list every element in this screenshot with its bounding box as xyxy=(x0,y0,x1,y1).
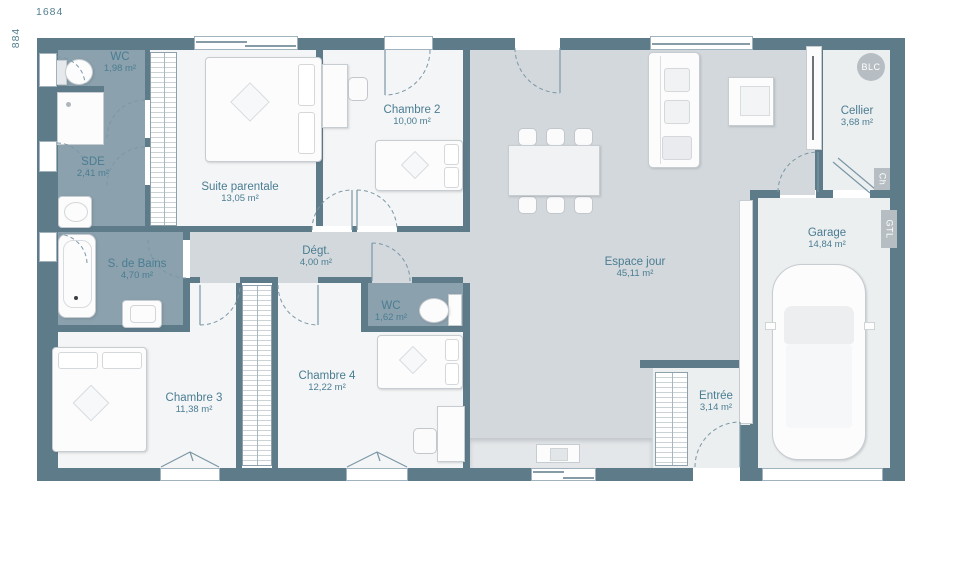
dining-chair xyxy=(518,128,537,146)
chair-chambre2 xyxy=(348,77,368,101)
wall-couloir-haut-b xyxy=(352,226,357,232)
toilet-bowl-wc1 xyxy=(65,59,93,85)
wall-wc2-bottom xyxy=(361,326,470,332)
washbasin-sde-bowl xyxy=(64,202,88,222)
window-salle-de-bains xyxy=(39,232,57,262)
pillow xyxy=(444,144,459,165)
dining-chair xyxy=(574,128,593,146)
wall-placard-right xyxy=(272,283,278,468)
wardrobe-suite xyxy=(150,52,177,226)
sofa-cushion xyxy=(664,100,690,124)
armchair-seat xyxy=(740,86,770,116)
floor-chambre3-upper xyxy=(190,283,236,332)
window-wc1 xyxy=(39,53,57,87)
wall-couloir-bas-a xyxy=(190,277,200,283)
window-espace-jour xyxy=(650,36,753,50)
pillow xyxy=(445,339,459,361)
dining-chair xyxy=(546,128,565,146)
pillow xyxy=(58,352,98,369)
garage-door xyxy=(762,468,883,481)
wall-couloir-haut-c xyxy=(397,226,470,232)
tv-icon xyxy=(550,448,568,461)
sofa-cushion xyxy=(664,68,690,92)
window-suite-parentale xyxy=(194,36,298,50)
kitchen-counter-garage-wall xyxy=(739,200,753,424)
front-door-opening xyxy=(693,468,740,481)
dining-chair xyxy=(574,196,593,214)
pillow xyxy=(444,167,459,188)
wall-chambre2-sejour xyxy=(463,50,470,232)
desk-chambre2 xyxy=(322,64,348,128)
wardrobe-chambres xyxy=(242,285,272,466)
wall-outer-top xyxy=(37,38,905,50)
floor-plan: 1684 884 xyxy=(0,0,960,582)
wall-couloir-haut-a xyxy=(190,226,312,232)
dimension-height: 884 xyxy=(10,18,22,58)
car-mirror-left xyxy=(765,322,776,330)
pillow xyxy=(298,112,315,154)
wardrobe-entree xyxy=(655,372,688,466)
pillow xyxy=(102,352,142,369)
wall-entree-right xyxy=(740,425,750,468)
window-chambre2 xyxy=(384,36,433,50)
window-sde xyxy=(39,141,57,172)
dining-chair xyxy=(518,196,537,214)
wall-sdb-right-a xyxy=(183,232,190,240)
pillow xyxy=(298,64,315,106)
desk-chambre4 xyxy=(437,406,465,462)
toilet-bowl-wc2 xyxy=(419,298,449,323)
pillow xyxy=(445,363,459,385)
boiler-badge: Ch xyxy=(874,168,890,190)
wall-couloir-bas-d xyxy=(412,277,463,283)
dimension-width: 1684 xyxy=(36,6,63,18)
sofa-backrest-line xyxy=(660,56,661,164)
car-roof xyxy=(786,344,852,428)
wall-outer-right xyxy=(890,38,905,481)
window-chambre4 xyxy=(346,468,408,481)
water-heater-badge: BLC xyxy=(857,53,885,81)
car-windshield xyxy=(784,306,854,344)
dining-table xyxy=(508,145,600,196)
wall-cellier-bas-b xyxy=(816,190,833,198)
gtl-badge: GTL xyxy=(881,210,897,248)
dining-chair xyxy=(546,196,565,214)
car-mirror-right xyxy=(864,322,875,330)
floor-degagement xyxy=(190,232,470,283)
bay-window-espace-jour xyxy=(531,468,596,481)
bathtub-drain-icon xyxy=(74,296,78,300)
wall-cellier-bas-a xyxy=(750,190,780,198)
kitchen-unit-handle xyxy=(812,56,814,140)
sofa-footrest xyxy=(662,136,692,160)
wall-cellier-bas-c xyxy=(870,190,890,198)
toilet-tank-wc2 xyxy=(448,294,462,326)
wall-sdb-right-b xyxy=(183,278,190,332)
window-chambre3 xyxy=(160,468,220,481)
shower-sde xyxy=(57,92,104,145)
kitchen-unit-cellier-wall xyxy=(806,46,822,150)
door-opening-sejour-nord xyxy=(515,37,560,50)
chair-chambre4 xyxy=(413,428,437,454)
wall-wc2-left xyxy=(361,283,368,332)
washbasin-sdb-bowl xyxy=(130,305,156,323)
shower-drain-icon xyxy=(66,102,71,107)
